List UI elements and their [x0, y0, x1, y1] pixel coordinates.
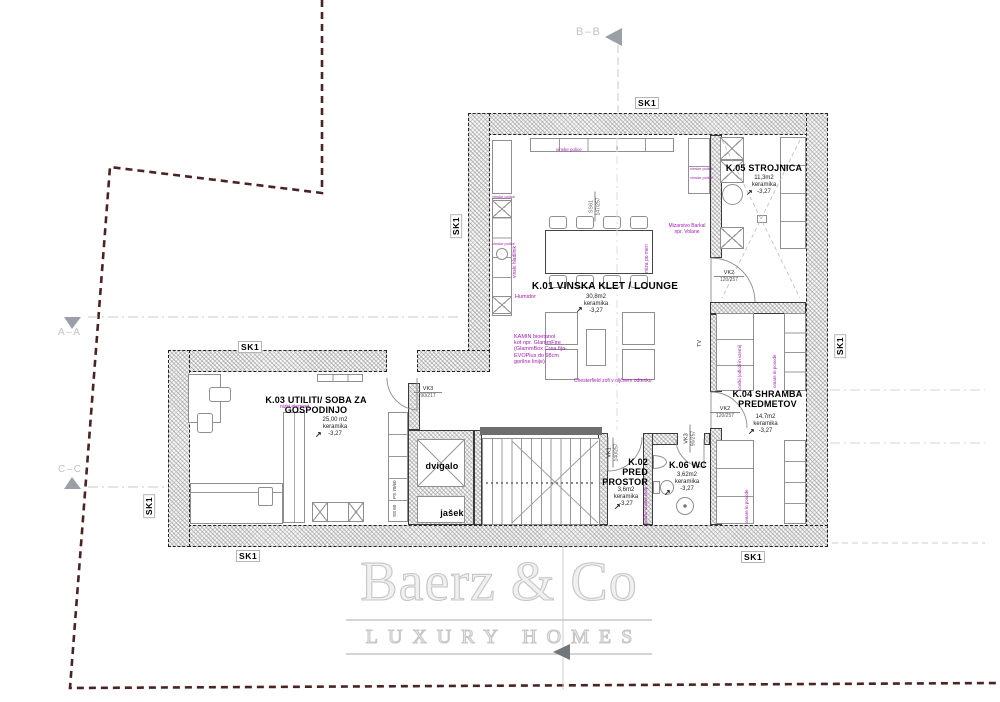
room-info-k02: 3,6m2 keramika -3,27: [606, 487, 646, 507]
note-line: (GlammBox Crea fija-: [514, 346, 567, 352]
door-size: 120/257: [710, 412, 740, 419]
note-laundry: pralno-sušilni stolp: [643, 468, 648, 524]
door-size: 90/257: [690, 425, 697, 453]
door-code: VK2: [724, 270, 734, 276]
shaft-label: jašek: [430, 508, 474, 518]
room-label-line: PRED: [596, 467, 648, 477]
wall-tag-sk1-top: SK1: [635, 97, 659, 109]
room-area: 3,62m2: [662, 472, 712, 479]
room-info-k05: 11,3m2 keramika -3,27: [736, 175, 792, 195]
door-size: 120/257: [714, 276, 744, 283]
room-area: 25,00 m2: [305, 417, 365, 424]
note-shelves: vinske police: [690, 166, 713, 171]
note-kamin: KAMIN bioetanol kot npr. GlammFire (Glam…: [514, 334, 567, 365]
wall-tag-sk1-left-lower: SK1: [143, 494, 155, 518]
note-table: miza po meri: [644, 233, 650, 273]
level-arrow-icon: ↗: [614, 502, 621, 511]
wall-tag-sk1-right: SK1: [834, 334, 846, 358]
room-label-line: K.02: [596, 457, 648, 467]
note-shelves: vinske police: [492, 194, 515, 199]
room-level: -3,27: [566, 308, 626, 315]
level-arrow-icon: ↗: [746, 188, 753, 197]
room-label-line: PROSTOR: [596, 477, 648, 487]
note-shelves: vinske police: [690, 175, 713, 180]
note-shelves: vinske police: [556, 147, 582, 152]
section-triangle-bb-bottom: [553, 644, 570, 660]
room-finish: keramika: [662, 479, 712, 486]
ps-cabinet-label: PS 70/60: [392, 481, 397, 499]
door-tag-vk3-wc: VK3 90/257: [684, 425, 697, 453]
door-tag-vk2-k05: VK2 120/257: [714, 270, 744, 283]
level-arrow-icon: ↗: [576, 305, 583, 314]
door-code: VK2: [720, 406, 730, 412]
ss-cabinet-label: SS 60: [392, 503, 397, 517]
door-tag-vk2-k04: VK2 120/257: [710, 406, 740, 419]
door-tag-vk3-k03: VK3 90/217: [414, 386, 442, 399]
door-code: VK3: [423, 386, 433, 392]
room-label-line: K.03 UTILITI/ SOBA ZA: [252, 395, 380, 405]
room-level: -3,27: [305, 431, 365, 438]
room-info-k01: 30,8m2 keramika -3,27: [566, 294, 626, 314]
room-finish: keramika: [305, 424, 365, 431]
room-level: -3,27: [738, 428, 793, 435]
room-label-k02: K.02 PRED PROSTOR: [596, 457, 648, 487]
stair-detail: [486, 441, 598, 523]
room-finish: keramika: [738, 421, 793, 428]
wall-tag-sk1-left-upper: SK1: [450, 214, 462, 238]
section-lines: [88, 45, 985, 690]
room-info-k03: 25,00 m2 keramika -3,27: [305, 417, 365, 437]
room-area: 14,7m2: [738, 414, 793, 421]
room-label-k03: K.03 UTILITI/ SOBA ZA GOSPODINJO: [252, 395, 380, 415]
room-area: 11,3m2: [736, 175, 792, 182]
door-code: SS61: [589, 200, 595, 213]
floor-plan-canvas: Baerz & Co LUXURY HOMES: [0, 0, 1000, 702]
linework-overlay: [0, 0, 1000, 702]
room-finish: keramika: [736, 182, 792, 189]
note-storage: omare in posode: [744, 468, 749, 523]
note-wine-fridge: vinski hladilnik: [512, 228, 518, 278]
door-tag-vk1: VK1 140/257: [607, 438, 620, 468]
note-line: EVOPlus do 98cm: [514, 353, 567, 359]
note-storage: omare in posode: [772, 318, 777, 388]
room-level: -3,27: [606, 501, 646, 508]
room-label-k01: K.01 VINSKA KLET / LOUNGE: [530, 282, 680, 292]
section-triangle-cc: [64, 477, 81, 489]
section-label-aa: A–A: [58, 327, 81, 338]
wall-tag-sk1-mid-left: SK1: [238, 341, 262, 353]
wall-tag-sk1-bottom-right: SK1: [741, 551, 765, 563]
room-info-k04: 14,7m2 keramika -3,27: [738, 414, 793, 434]
note-suitcases: kovčki (odloži in vzemi): [737, 315, 742, 391]
door-size: 140/257: [613, 438, 620, 468]
wall-tag-sk1-bottom-left: SK1: [236, 550, 260, 562]
level-arrow-icon: ↗: [315, 430, 322, 439]
room-area: 30,8m2: [566, 294, 626, 301]
note-line: gorilne linije): [514, 359, 567, 365]
section-triangle-bb-top: [605, 28, 622, 46]
opening-tag-ss61: SS61 147/257: [589, 192, 602, 222]
note-line: npr. Volane: [664, 230, 710, 236]
tv-label: TV: [697, 333, 703, 347]
section-label-bb: B–B: [576, 26, 601, 38]
level-arrow-icon: ↗: [748, 427, 755, 436]
door-code: VK1: [607, 447, 613, 457]
door-size: 147/257: [595, 192, 602, 222]
level-arrow-icon: ↗: [664, 488, 671, 497]
elevator-label: dvigalo: [420, 461, 464, 471]
door-code: VK3: [684, 433, 690, 443]
room-finish: keramika: [566, 301, 626, 308]
room-label-k06: K.06 WC: [660, 460, 716, 470]
humidor-label: Humidor: [515, 294, 536, 300]
room-label-line: GOSPODINJO: [252, 405, 380, 415]
note-low-element: nizki element: [280, 404, 309, 410]
room-level: -3,27: [736, 189, 792, 196]
note-mizar: Mizarstvo Barkal npr. Volane: [664, 224, 710, 235]
note-chesterfield: Chesterfield zofi v oljčnem odtenku: [574, 378, 652, 384]
note-shelves: vinske police: [492, 241, 515, 246]
section-label-cc: C–C: [58, 464, 83, 475]
door-size: 90/217: [414, 392, 442, 399]
room-label-k05: K.05 STROJNICA: [720, 163, 808, 173]
room-finish: keramika: [606, 494, 646, 501]
room-area: 3,6m2: [606, 487, 646, 494]
